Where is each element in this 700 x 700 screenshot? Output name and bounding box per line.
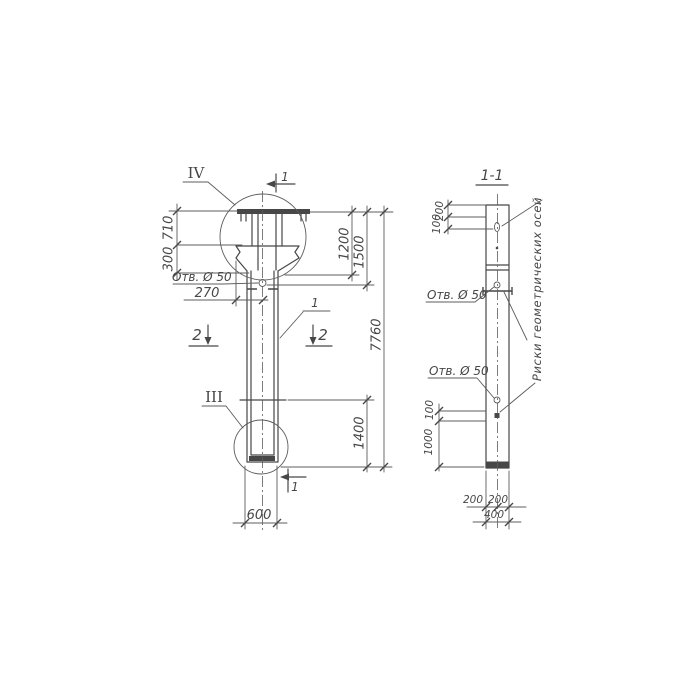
- dim-1400: 1400: [353, 416, 368, 449]
- part-callout-label: 1: [311, 296, 319, 310]
- detail-label-IV: IV: [188, 164, 206, 182]
- column-neck-outline: [252, 214, 282, 270]
- lower-hole-label-leader: [428, 378, 494, 398]
- dim-1500: 1500: [353, 235, 368, 268]
- center-dot: [496, 247, 499, 250]
- section-arrow-top-icon: [266, 181, 275, 188]
- dim-bot-400: 400: [484, 509, 504, 521]
- hole-label-lower: Отв. Ø 50: [429, 364, 489, 378]
- dim-710: 710: [162, 216, 177, 241]
- section-mark-2-left: 2: [192, 326, 202, 344]
- detail-circle-III: [234, 420, 288, 474]
- section-mark-1-bottom: 1: [291, 480, 299, 494]
- dim-top-100: 100: [431, 214, 443, 234]
- section-view: 1-1 200 100 100 1000 200 200 400 Отв. Ø …: [423, 168, 544, 530]
- axis-mark-square: [495, 413, 500, 418]
- section-view-title: 1-1: [481, 168, 504, 184]
- dim-1200: 1200: [338, 227, 353, 260]
- corbel-brackets: [236, 246, 299, 271]
- dim-low-100: 100: [424, 400, 436, 420]
- section-dimension-lines: [439, 200, 526, 522]
- dim-270: 270: [195, 286, 220, 301]
- dim-low-1000: 1000: [423, 428, 435, 455]
- technical-drawing: IV III 1 1 2 2 1 710 300 1200 1500 7760 …: [0, 0, 700, 700]
- dim-600: 600: [247, 508, 272, 523]
- section-arrow-bottom-icon: [280, 474, 289, 481]
- column-tip-plate: [249, 456, 275, 461]
- hole-50-lower-section: [494, 397, 500, 403]
- section-arrow-right2-icon: [310, 337, 317, 345]
- hole-50-upper-section: [494, 282, 500, 288]
- section-mark-2-right: 2: [318, 326, 328, 344]
- hole-label-elevation: Отв. Ø 50: [172, 270, 232, 284]
- dim-7760: 7760: [370, 318, 385, 351]
- dim-bot-200-right: 200: [488, 494, 508, 506]
- top-slot-hole: [495, 223, 500, 232]
- elevation-view: IV III 1 1 2 2 1 710 300 1200 1500 7760 …: [162, 164, 394, 531]
- section-arrow-left2-icon: [205, 337, 212, 345]
- dim-300: 300: [162, 247, 177, 272]
- axes-note-text: Риски геометрических осей: [530, 197, 544, 381]
- detail-label-III: III: [205, 388, 223, 406]
- detail-circle-IV: [220, 194, 306, 280]
- dim-bot-200-left: 200: [463, 494, 483, 506]
- drawing-sheet: IV III 1 1 2 2 1 710 300 1200 1500 7760 …: [0, 0, 700, 700]
- section-cut-marks: [189, 174, 332, 492]
- hole-label-upper: Отв. Ø 50: [427, 288, 487, 302]
- section-mark-1-top: 1: [281, 170, 289, 184]
- flange-stubs: [241, 214, 306, 221]
